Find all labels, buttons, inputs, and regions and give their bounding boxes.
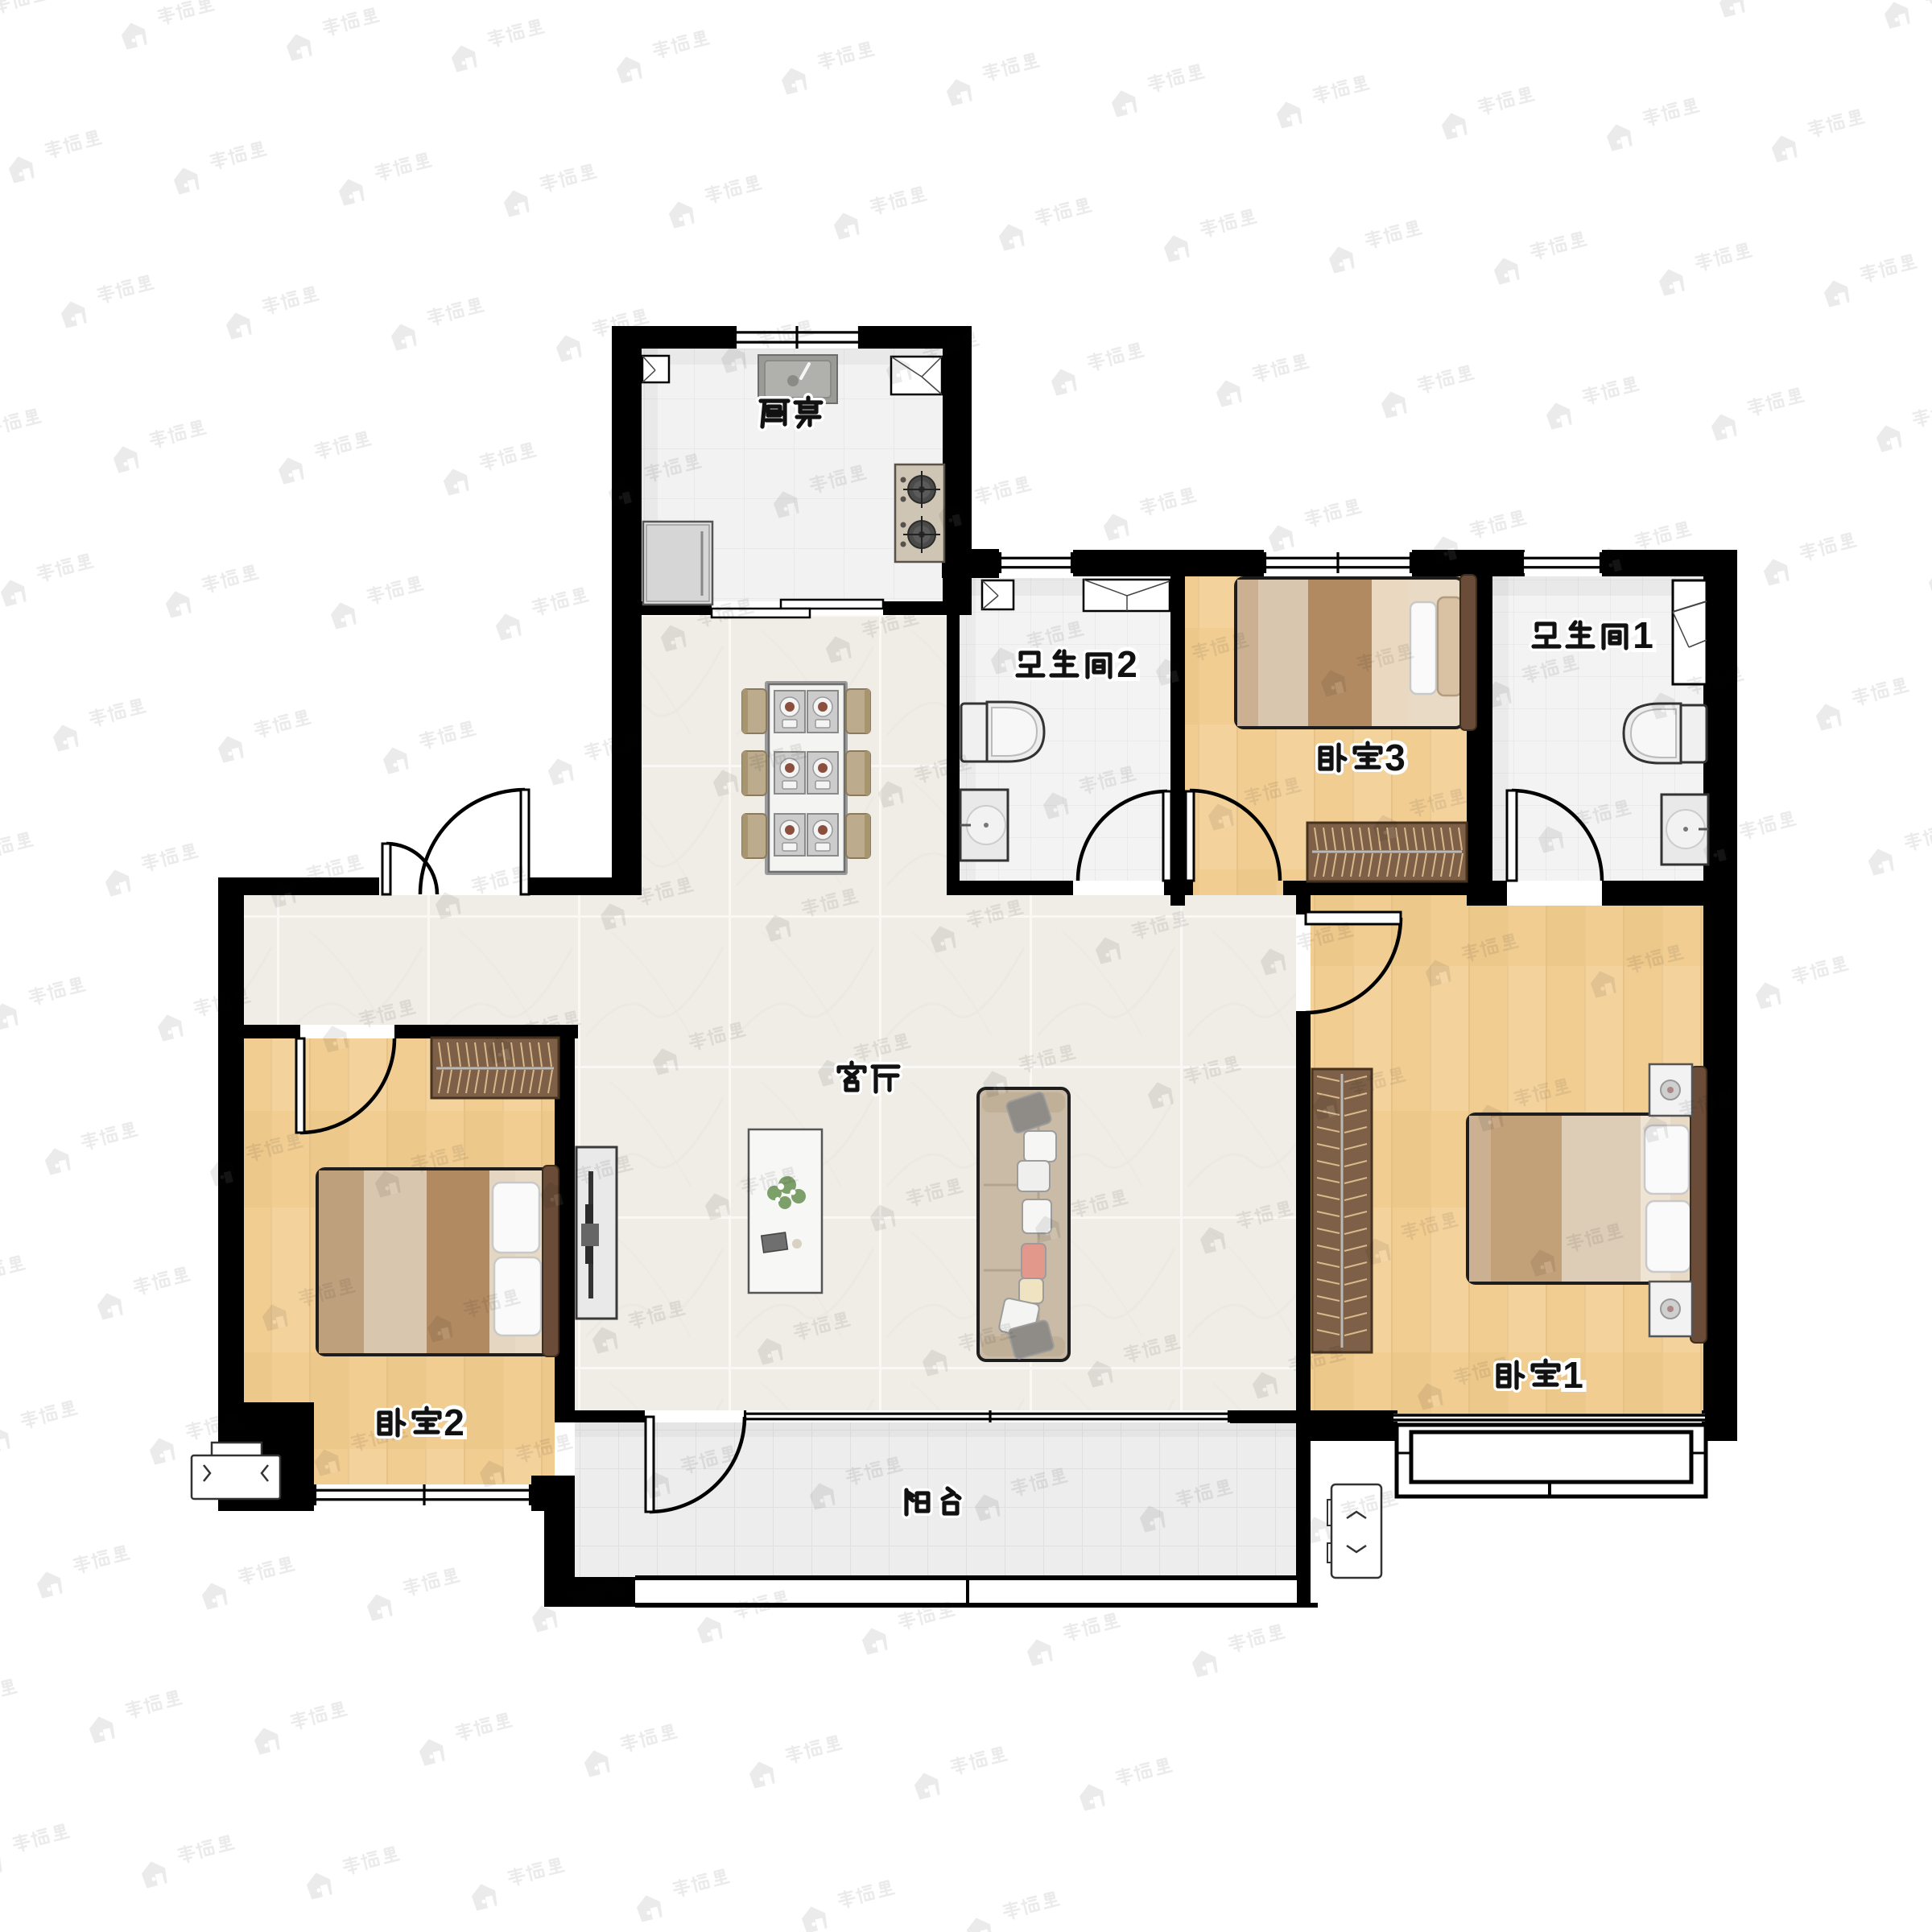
svg-text:2: 2 [444,1402,464,1443]
svg-text:1: 1 [1633,614,1653,656]
svg-text:2: 2 [1117,643,1137,685]
svg-text:1: 1 [1563,1354,1583,1396]
svg-text:3: 3 [1385,737,1406,778]
